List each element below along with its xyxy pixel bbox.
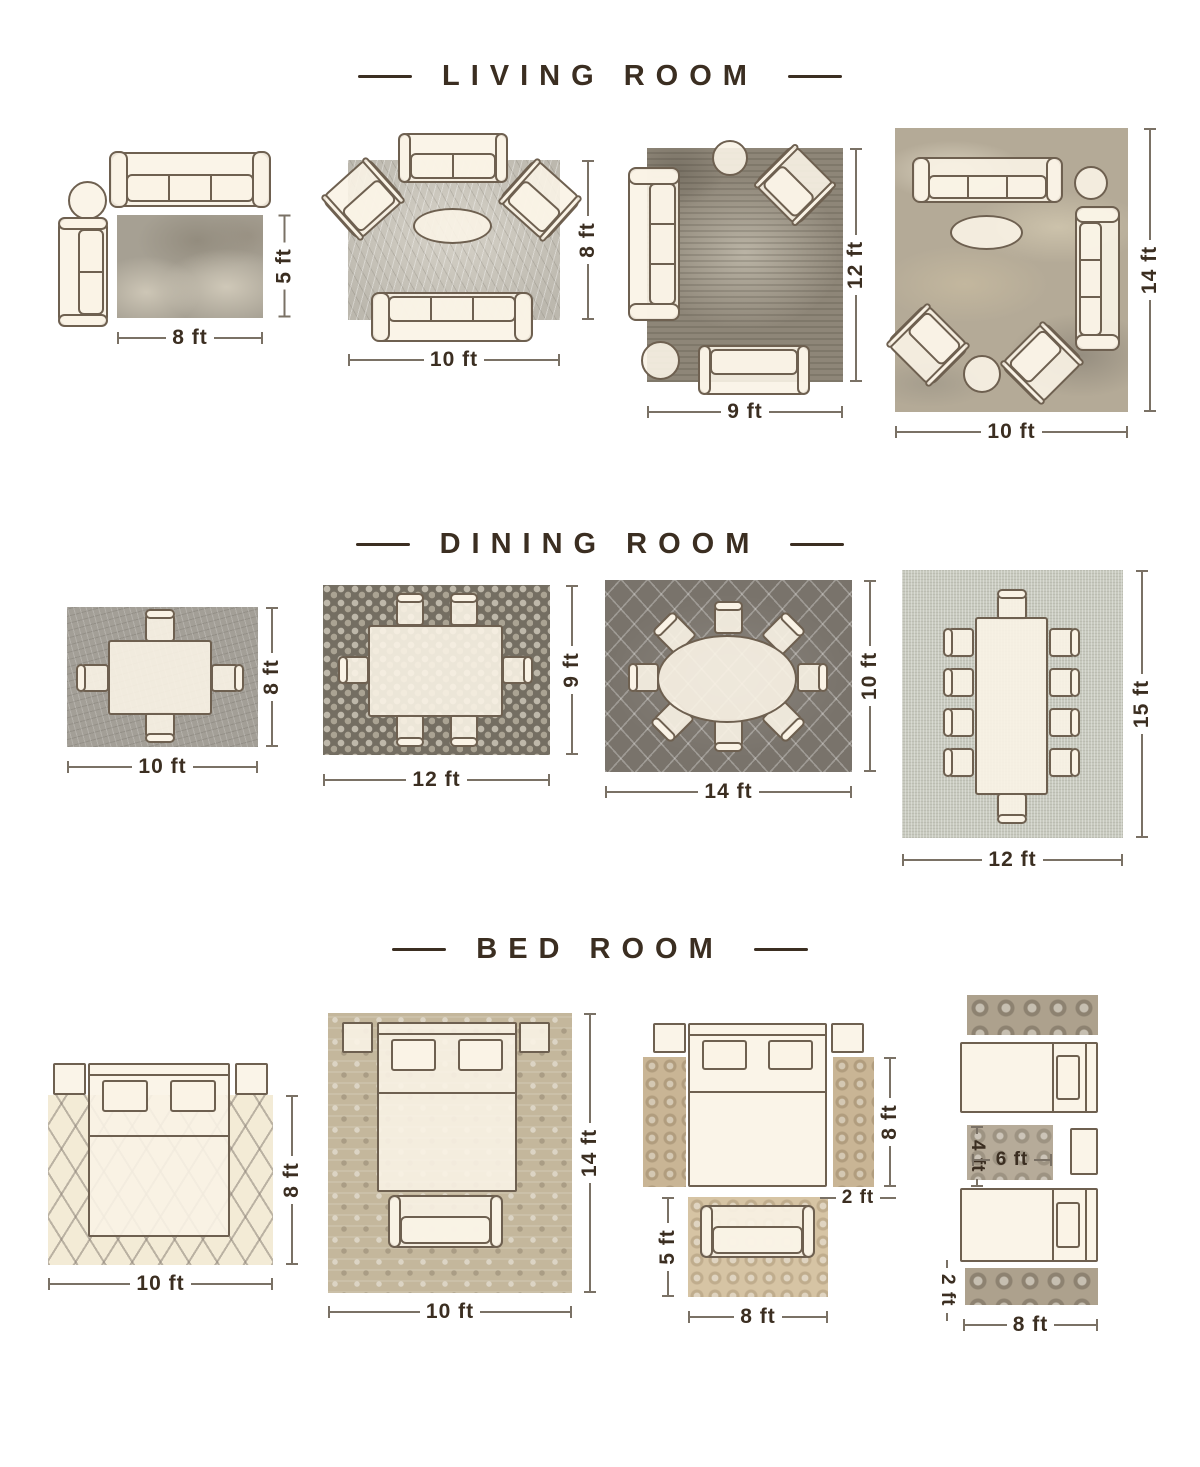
section-title-text: LIVING ROOM — [442, 60, 758, 93]
dim-line — [1144, 128, 1156, 240]
bed-fold-line — [90, 1135, 228, 1137]
dim-label: 8 ft — [280, 1162, 304, 1198]
headboard — [690, 1025, 825, 1036]
nightstand — [1070, 1128, 1098, 1175]
pillow — [170, 1080, 216, 1112]
dim-line — [662, 1271, 674, 1297]
dining-chair — [1049, 668, 1075, 697]
oval-coffee-table — [413, 208, 492, 244]
dim-line — [662, 1197, 674, 1223]
sofa-three-seat — [1075, 207, 1120, 350]
dim-line — [972, 1154, 990, 1166]
dim-line — [279, 215, 291, 243]
dim-label: 8 ft — [260, 659, 284, 695]
sofa-seats — [400, 1216, 491, 1243]
dim-height: 5 ft — [273, 215, 297, 318]
oval-coffee-table — [950, 215, 1023, 250]
sofa-seats — [78, 229, 104, 316]
nightstand — [653, 1023, 686, 1053]
dim-line — [884, 1057, 896, 1098]
dim-label: 12 ft — [988, 848, 1036, 872]
round-side-table — [712, 140, 748, 176]
dim-width: 10 ft — [67, 755, 258, 779]
dim-width: 12 ft — [323, 768, 550, 792]
dining-chair — [1049, 628, 1075, 657]
dining-table — [975, 617, 1048, 795]
section-title-text: BED ROOM — [476, 933, 724, 966]
sofa-seats — [126, 174, 254, 203]
dim-label: 10 ft — [138, 755, 186, 779]
sofa-arm — [490, 1195, 503, 1249]
title-dash — [788, 75, 842, 78]
dining-chair — [948, 628, 974, 657]
dining-chair — [502, 656, 528, 684]
dim-line — [193, 761, 258, 773]
dining-chair — [343, 656, 369, 684]
nightstand — [831, 1023, 864, 1053]
title-dash — [754, 948, 808, 951]
oval-dining-table — [657, 635, 797, 723]
dim-height: 12 ft — [844, 148, 868, 382]
sofa-seats — [1079, 222, 1102, 336]
dim-line — [971, 1126, 983, 1134]
loveseat-two-seat — [698, 345, 810, 395]
section-title-text: DINING ROOM — [440, 528, 761, 561]
dining-chair — [81, 664, 109, 692]
sofa-seats — [410, 153, 497, 179]
dim-line — [605, 786, 698, 798]
sofa-arm — [58, 217, 109, 230]
dim-label: 14 ft — [1138, 246, 1162, 294]
dim-bed-height: 8 ft — [878, 1057, 902, 1187]
dim-line — [584, 1183, 596, 1293]
bedside-runner — [967, 995, 1098, 1035]
dim-line — [1042, 426, 1128, 438]
dim-width: 10 ft — [348, 348, 560, 372]
dim-label: 9 ft — [727, 400, 763, 424]
dining-chair — [145, 614, 175, 642]
loveseat — [700, 1205, 815, 1258]
dining-chair — [396, 598, 424, 626]
bed-fold-line — [1052, 1044, 1054, 1111]
bed — [377, 1022, 517, 1192]
bench-loveseat — [388, 1195, 503, 1248]
section-title-living-room: LIVING ROOM — [0, 60, 1200, 93]
round-side-table — [1074, 166, 1108, 200]
dim-height: 8 ft — [260, 607, 284, 747]
dining-chair — [948, 708, 974, 737]
dim-width: 12 ft — [902, 848, 1123, 872]
dim-line — [286, 1204, 298, 1265]
title-dash — [392, 948, 446, 951]
dim-line — [864, 706, 876, 772]
dim-label: 2 ft — [842, 1187, 875, 1209]
dim-line — [286, 1095, 298, 1156]
dim-width: 14 ft — [605, 780, 852, 804]
dining-chair — [948, 668, 974, 697]
sofa-seats — [928, 175, 1047, 199]
dim-width: 9 ft — [647, 400, 843, 424]
dim-line — [864, 580, 876, 646]
dim-line — [963, 1319, 1007, 1331]
dim-line — [880, 1192, 896, 1204]
twin-bed — [960, 1042, 1098, 1113]
dim-height: 9 ft — [560, 585, 584, 755]
sofa-seats — [710, 349, 799, 375]
title-dash — [790, 543, 844, 546]
dining-chair — [714, 719, 743, 747]
dim-label: 8 ft — [878, 1104, 902, 1140]
dim-label: 14 ft — [578, 1129, 602, 1177]
dining-chair — [450, 598, 478, 626]
sofa-arm — [495, 133, 508, 184]
bed-fold-line — [1052, 1190, 1054, 1260]
sofa-arm — [514, 292, 533, 343]
dining-chair — [714, 606, 743, 634]
rug-size-guide: LIVING ROOM 5 ft 8 ft 8 — [0, 0, 1200, 1467]
round-side-table — [641, 341, 680, 380]
sofa-arm — [1046, 157, 1063, 203]
loveseat-two-seat — [58, 217, 108, 327]
sofa-arm — [371, 292, 390, 343]
dim-height: 8 ft — [280, 1095, 304, 1265]
dim-width: 10 ft — [895, 420, 1128, 444]
dim-line — [769, 406, 843, 418]
pillow — [458, 1039, 503, 1071]
dim-line — [582, 264, 594, 320]
dim-runner-width: 2 ft — [820, 1186, 896, 1210]
dim-line — [895, 426, 981, 438]
dim-line — [467, 774, 550, 786]
dim-label: 15 ft — [1130, 680, 1154, 728]
dining-chair — [1049, 708, 1075, 737]
dim-height: 10 ft — [858, 580, 882, 772]
dim-line — [266, 701, 278, 747]
dim-line — [328, 1306, 420, 1318]
living-rug-8x5 — [117, 215, 263, 318]
dining-chair — [797, 663, 823, 692]
dim-line — [850, 148, 862, 235]
dining-table — [108, 640, 212, 715]
dim-line — [566, 585, 578, 646]
dim-label: 6 ft — [996, 1149, 1029, 1171]
dining-chair — [211, 664, 239, 692]
bed-fold-line — [379, 1092, 515, 1094]
dim-runner-width: 2 ft — [935, 1260, 959, 1310]
pillow — [1056, 1202, 1080, 1248]
dim-line — [582, 160, 594, 216]
section-title-dining-room: DINING ROOM — [0, 528, 1200, 561]
round-side-table — [68, 181, 107, 220]
dim-line — [647, 406, 721, 418]
sofa-arm — [1075, 334, 1120, 351]
sofa-arm — [58, 314, 109, 327]
dim-line — [214, 332, 263, 344]
dim-line — [117, 332, 166, 344]
dim-accent-rug-width: 6 ft — [972, 1148, 1052, 1172]
dining-chair — [948, 748, 974, 777]
dim-line — [971, 1179, 983, 1187]
dim-label: 10 ft — [426, 1300, 474, 1324]
dim-label: 14 ft — [704, 780, 752, 804]
dim-label: 8 ft — [740, 1305, 776, 1329]
sofa-three-seat — [628, 168, 680, 320]
sofa-arm — [802, 1205, 815, 1259]
dim-height: 15 ft — [1130, 570, 1154, 838]
twin-bed — [960, 1188, 1098, 1262]
sofa-seats — [712, 1226, 803, 1253]
dim-line — [941, 1313, 953, 1321]
dim-label: 5 ft — [656, 1229, 680, 1265]
sofa-arm — [797, 345, 810, 396]
dim-foot-rug-height: 5 ft — [656, 1197, 680, 1297]
sofa-three-seat — [372, 292, 532, 342]
headboard — [90, 1065, 228, 1076]
sofa-three-seat — [913, 157, 1062, 203]
sofa-arm — [698, 345, 711, 396]
sofa-arm — [912, 157, 929, 203]
dim-line — [1054, 1319, 1098, 1331]
bedside-runner — [643, 1057, 686, 1187]
pillow — [702, 1040, 747, 1070]
bedside-runner — [833, 1057, 874, 1187]
dim-width: 8 ft — [963, 1313, 1098, 1337]
dim-line — [941, 1260, 953, 1268]
dim-line — [820, 1192, 836, 1204]
sofa-seats — [388, 296, 516, 322]
dim-line — [266, 607, 278, 653]
dim-line — [850, 295, 862, 382]
dim-line — [480, 1306, 572, 1318]
dining-chair — [633, 663, 659, 692]
nightstand — [519, 1022, 550, 1053]
dining-chair — [1049, 748, 1075, 777]
dim-line — [688, 1311, 734, 1323]
bed — [688, 1023, 827, 1187]
dim-height: 14 ft — [1138, 128, 1162, 412]
dim-line — [782, 1311, 828, 1323]
dim-line — [67, 761, 132, 773]
dim-label: 12 ft — [844, 241, 868, 289]
dim-label: 9 ft — [560, 652, 584, 688]
dim-line — [884, 1146, 896, 1187]
bedside-runner — [965, 1268, 1098, 1305]
section-title-bed-room: BED ROOM — [0, 933, 1200, 966]
bed-fold-line — [690, 1091, 825, 1093]
dim-height: 8 ft — [576, 160, 600, 320]
sofa-arm — [1075, 206, 1120, 223]
sofa-arm — [628, 303, 681, 321]
dim-label: 8 ft — [172, 326, 208, 350]
sofa-arm — [628, 167, 681, 185]
dim-line — [323, 774, 406, 786]
dim-height: 14 ft — [578, 1013, 602, 1293]
pillow — [1056, 1055, 1080, 1099]
sofa-seats — [649, 183, 676, 304]
dim-line — [1144, 300, 1156, 412]
dim-label: 8 ft — [1013, 1313, 1049, 1337]
bed — [88, 1063, 230, 1237]
dim-label: 10 ft — [136, 1272, 184, 1296]
dim-line — [1034, 1154, 1052, 1166]
dim-label: 10 ft — [858, 652, 882, 700]
dim-line — [1136, 734, 1148, 838]
dim-line — [48, 1278, 130, 1290]
nightstand — [342, 1022, 373, 1053]
dining-chair — [145, 712, 175, 738]
pillow — [102, 1080, 148, 1112]
dim-label: 2 ft — [936, 1274, 958, 1307]
sofa-three-seat — [110, 152, 270, 207]
dim-line — [584, 1013, 596, 1123]
dim-foot-rug-width: 8 ft — [688, 1305, 828, 1329]
dim-width: 8 ft — [117, 326, 263, 350]
headboard — [1085, 1190, 1096, 1260]
title-dash — [358, 75, 412, 78]
loveseat-two-seat — [398, 133, 508, 183]
dim-label: 10 ft — [987, 420, 1035, 444]
pillow — [768, 1040, 813, 1070]
dim-line — [1136, 570, 1148, 674]
sofa-arm — [252, 151, 271, 207]
sofa-arm — [109, 151, 128, 207]
dining-chair — [450, 714, 478, 742]
dim-line — [348, 354, 424, 366]
dim-label: 12 ft — [412, 768, 460, 792]
nightstand — [53, 1063, 86, 1095]
dining-chair — [997, 793, 1027, 819]
dim-width: 10 ft — [328, 1300, 572, 1324]
dining-table — [368, 625, 503, 717]
round-side-table — [963, 355, 1001, 393]
dim-line — [191, 1278, 273, 1290]
dim-width: 10 ft — [48, 1272, 273, 1296]
dining-chair — [396, 714, 424, 742]
dim-label: 8 ft — [576, 222, 600, 258]
dim-label: 5 ft — [273, 248, 297, 284]
dim-line — [279, 290, 291, 318]
dim-line — [902, 854, 982, 866]
headboard — [379, 1024, 515, 1035]
headboard — [1085, 1044, 1096, 1111]
sofa-arm — [398, 133, 411, 184]
pillow — [391, 1039, 436, 1071]
title-dash — [356, 543, 410, 546]
dim-line — [759, 786, 852, 798]
nightstand — [235, 1063, 268, 1095]
dim-label: 10 ft — [430, 348, 478, 372]
dim-line — [484, 354, 560, 366]
dim-line — [1043, 854, 1123, 866]
dim-line — [566, 694, 578, 755]
